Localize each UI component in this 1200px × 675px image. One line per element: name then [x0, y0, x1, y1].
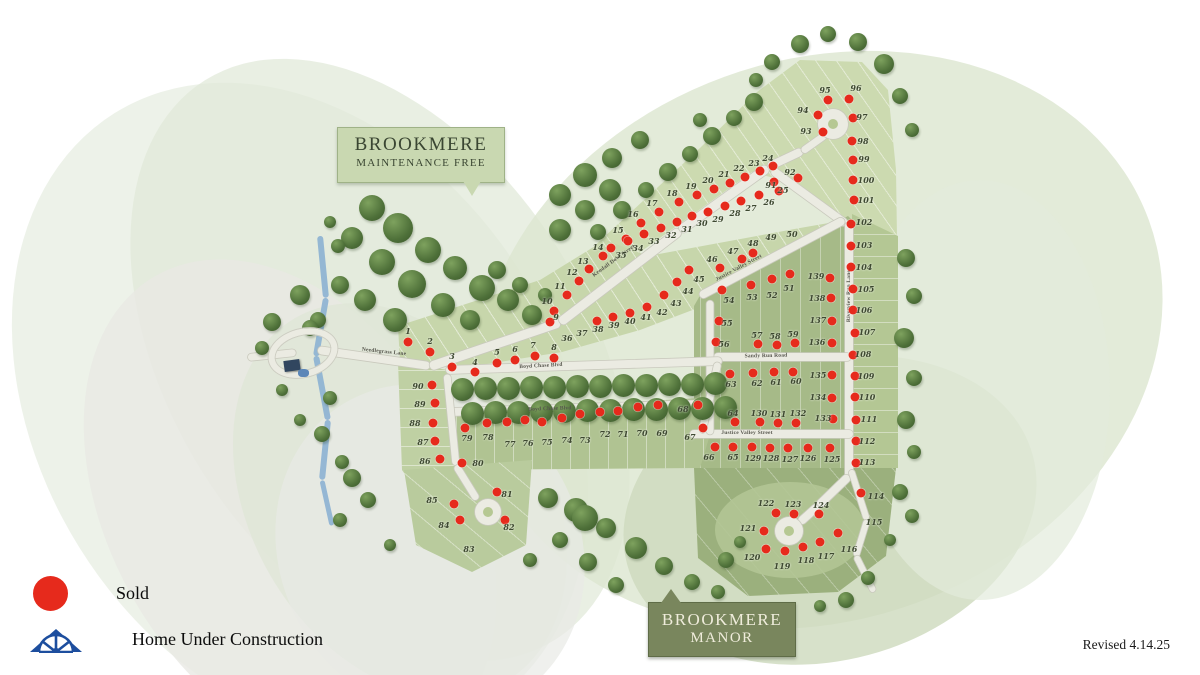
lot-8-label: 8	[551, 342, 557, 352]
lot-94-label: 94	[797, 105, 808, 115]
sold-dot-lot-90	[428, 381, 437, 390]
tree-icon	[897, 411, 915, 429]
lot-134-label: 134	[810, 392, 827, 402]
lot-117-label: 117	[818, 551, 835, 561]
sold-dot-lot-81	[493, 488, 502, 497]
lot-53-label: 53	[746, 292, 757, 302]
sold-dot-lot-7	[531, 352, 540, 361]
under-construction-label: Home Under Construction	[132, 629, 323, 650]
sold-dot-lot-125	[826, 444, 835, 453]
site-plan: 1234567891011121314151617181920212223242…	[0, 0, 1200, 675]
tree-icon	[659, 163, 677, 181]
lot-123-label: 123	[785, 499, 802, 509]
sold-dot-lot-44	[673, 278, 682, 287]
sold-dot-lot-119	[781, 547, 790, 556]
sold-dot-lot-79	[461, 424, 470, 433]
lot-75-label: 75	[541, 437, 552, 447]
sold-dot-lot-124	[815, 510, 824, 519]
lot-136-label: 136	[809, 337, 826, 347]
lot-115-label: 115	[866, 517, 883, 527]
lot-5-label: 5	[494, 347, 500, 357]
legend-row-construction: Home Under Construction	[30, 616, 323, 662]
lot-124-label: 124	[813, 500, 830, 510]
tree-icon	[323, 391, 337, 405]
tree-icon	[635, 374, 658, 397]
lot-43-label: 43	[670, 298, 681, 308]
sold-dot-lot-47	[738, 255, 747, 264]
lot-138-label: 138	[809, 293, 826, 303]
lot-126-label: 126	[800, 453, 817, 463]
lot-110-label: 110	[859, 392, 876, 402]
lot-105-label: 105	[858, 284, 875, 294]
tree-icon	[638, 182, 654, 198]
lot-50-label: 50	[786, 229, 797, 239]
sold-dot-lot-68	[694, 401, 703, 410]
tree-icon	[314, 426, 330, 442]
tree-icon	[263, 313, 281, 331]
tree-icon	[764, 54, 780, 70]
tree-icon	[566, 375, 589, 398]
sold-dot-lot-35	[607, 244, 616, 253]
lot-73-label: 73	[579, 435, 590, 445]
sold-dot-lot-63	[726, 370, 735, 379]
lot-38-label: 38	[592, 324, 603, 334]
lot-78-label: 78	[482, 432, 493, 442]
tree-icon	[602, 148, 622, 168]
sold-dot-lot-80	[458, 459, 467, 468]
tree-icon	[522, 305, 542, 325]
tree-icon	[461, 402, 484, 425]
sold-dot-lot-77	[503, 418, 512, 427]
lot-129-label: 129	[745, 453, 762, 463]
tree-icon	[497, 377, 520, 400]
lot-44-label: 44	[682, 286, 693, 296]
lot-12-label: 12	[566, 267, 577, 277]
lot-11-label: 11	[554, 281, 565, 291]
cul-de-sac-island	[784, 526, 794, 536]
lot-67-label: 67	[684, 432, 695, 442]
tree-icon	[460, 310, 480, 330]
lot-23-label: 23	[748, 158, 759, 168]
tree-icon	[384, 539, 396, 551]
lot-101-label: 101	[858, 195, 875, 205]
lot-82-label: 82	[503, 522, 514, 532]
lot-41-label: 41	[640, 312, 651, 322]
lot-59-label: 59	[787, 329, 798, 339]
tree-icon	[443, 256, 467, 280]
lot-135-label: 135	[810, 370, 827, 380]
lot-74-label: 74	[561, 435, 572, 445]
tree-icon	[608, 577, 624, 593]
sold-dot-lot-117	[816, 538, 825, 547]
tree-icon	[575, 200, 595, 220]
lot-3-label: 3	[449, 351, 455, 361]
sold-dot-lot-22	[741, 173, 750, 182]
lot-22-label: 22	[733, 163, 744, 173]
sold-dot-lot-103	[847, 242, 856, 251]
brookmere-manor-title: BROOKMERE	[649, 610, 795, 630]
tree-icon	[892, 88, 908, 104]
tree-icon	[820, 26, 836, 42]
sold-dot-lot-87	[431, 437, 440, 446]
lot-4-label: 4	[472, 357, 478, 367]
lot-27-label: 27	[745, 203, 756, 213]
brookmere-sign-title: BROOKMERE	[338, 134, 504, 156]
sold-dot-lot-127	[784, 444, 793, 453]
tree-icon	[681, 373, 704, 396]
tree-icon	[625, 537, 647, 559]
sold-dot-lot-32	[657, 224, 666, 233]
sold-dot-lot-129	[748, 443, 757, 452]
tree-icon	[703, 127, 721, 145]
sold-dot-lot-3	[448, 363, 457, 372]
sold-dot-lot-123	[790, 510, 799, 519]
lot-28-label: 28	[729, 208, 740, 218]
sold-dot-lot-67	[699, 424, 708, 433]
tree-icon	[906, 370, 922, 386]
tree-icon	[596, 518, 616, 538]
tree-icon	[905, 123, 919, 137]
sold-dot-lot-85	[450, 500, 459, 509]
tree-icon	[549, 219, 571, 241]
sold-dot-lot-121	[760, 527, 769, 536]
sold-dot-lot-102	[847, 220, 856, 229]
sold-dot-lot-2	[426, 348, 435, 357]
street-label: Sandy Run Road	[745, 353, 788, 360]
tree-icon	[451, 378, 474, 401]
sold-dot-lot-58	[773, 341, 782, 350]
tree-icon	[631, 131, 649, 149]
tree-icon	[294, 414, 306, 426]
sold-dot-lot-48	[749, 249, 758, 258]
tree-icon	[894, 328, 914, 348]
lot-79-label: 79	[461, 433, 472, 443]
sold-dot-lot-62	[749, 369, 758, 378]
sold-dot-lot-70	[634, 403, 643, 412]
lot-57-label: 57	[751, 330, 762, 340]
tree-icon	[655, 557, 673, 575]
sold-dot-lot-69	[654, 401, 663, 410]
lot-24-label: 24	[762, 153, 773, 163]
sold-dot-lot-57	[754, 340, 763, 349]
legend: Sold Home Under Construction	[30, 570, 323, 662]
lot-56-label: 56	[718, 339, 729, 349]
sold-dot-lot-1	[404, 338, 413, 347]
lot-48-label: 48	[747, 238, 758, 248]
sold-dot-lot-4	[471, 368, 480, 377]
lot-47-label: 47	[727, 246, 738, 256]
lot-45-label: 45	[693, 274, 704, 284]
lot-54-label: 54	[723, 295, 734, 305]
lot-83-label: 83	[463, 544, 474, 554]
lot-21-label: 21	[718, 169, 729, 179]
tree-icon	[415, 237, 441, 263]
sold-dot-lot-11	[563, 291, 572, 300]
tree-icon	[335, 455, 349, 469]
lot-112-label: 112	[859, 436, 876, 446]
tree-icon	[276, 384, 288, 396]
tree-icon	[838, 592, 854, 608]
sold-dot-lot-89	[431, 399, 440, 408]
lot-97-label: 97	[856, 112, 867, 122]
lot-66-label: 66	[703, 452, 714, 462]
sold-dot-lot-137	[828, 317, 837, 326]
cul-de-sac-island	[483, 507, 493, 517]
sold-dot-lot-96	[845, 95, 854, 104]
sold-dot-lot-6	[511, 356, 520, 365]
tree-icon	[906, 288, 922, 304]
lot-52-label: 52	[766, 290, 777, 300]
tree-icon	[711, 585, 725, 599]
lot-37-label: 37	[576, 328, 587, 338]
lot-139-label: 139	[808, 271, 825, 281]
tree-icon	[849, 33, 867, 51]
lot-55-label: 55	[721, 318, 732, 328]
sold-dot-lot-120	[762, 545, 771, 554]
lot-104-label: 104	[856, 262, 873, 272]
sold-dot-lot-111	[852, 416, 861, 425]
brookmere-sign: BROOKMERE MAINTENANCE FREE	[337, 127, 505, 183]
tree-icon	[691, 397, 714, 420]
lot-14-label: 14	[592, 242, 603, 252]
tree-icon	[589, 375, 612, 398]
tree-icon	[543, 376, 566, 399]
lot-71-label: 71	[617, 429, 628, 439]
sold-dot-lot-88	[429, 419, 438, 428]
sold-dot-lot-73	[576, 410, 585, 419]
lot-122-label: 122	[758, 498, 775, 508]
lot-17-label: 17	[646, 198, 657, 208]
sold-dot-lot-94	[814, 111, 823, 120]
lot-18-label: 18	[666, 188, 677, 198]
sold-dot-lot-54	[718, 286, 727, 295]
sold-dot-lot-130	[756, 418, 765, 427]
lot-68-label: 68	[677, 404, 688, 414]
tree-icon	[290, 285, 310, 305]
sold-dot-lot-100	[849, 176, 858, 185]
sold-dot-lot-31	[673, 218, 682, 227]
tree-icon	[734, 536, 746, 548]
lot-61-label: 61	[770, 377, 781, 387]
lot-89-label: 89	[414, 399, 425, 409]
lot-116-label: 116	[841, 544, 858, 554]
tree-icon	[884, 534, 896, 546]
lot-88-label: 88	[409, 418, 420, 428]
lot-111-label: 111	[861, 414, 878, 424]
lot-92-label: 92	[784, 167, 795, 177]
tree-icon	[704, 372, 727, 395]
lot-106-label: 106	[856, 305, 873, 315]
lot-99-label: 99	[858, 154, 869, 164]
lot-25-label: 25	[777, 185, 788, 195]
tree-icon	[469, 275, 495, 301]
lot-29-label: 29	[712, 214, 723, 224]
sold-dot-lot-46	[716, 264, 725, 273]
tree-icon	[892, 484, 908, 500]
sold-dot-lot-76	[521, 416, 530, 425]
sold-dot-lot-64	[731, 418, 740, 427]
sold-dot-lot-42	[643, 303, 652, 312]
sold-dot-lot-135	[828, 371, 837, 380]
sold-dot-lot-138	[827, 294, 836, 303]
lot-65-label: 65	[727, 452, 738, 462]
sold-dot-lot-51	[786, 270, 795, 279]
lot-62-label: 62	[751, 378, 762, 388]
sold-dot-lot-33	[640, 230, 649, 239]
lot-10-label: 10	[541, 296, 552, 306]
sold-dot-lot-84	[456, 516, 465, 525]
tree-icon	[573, 163, 597, 187]
sold-dot-lot-53	[747, 281, 756, 290]
tree-icon	[324, 216, 336, 228]
lot-6-label: 6	[512, 344, 518, 354]
tree-icon	[684, 574, 700, 590]
lot-2-label: 2	[427, 336, 433, 346]
tree-icon	[523, 553, 537, 567]
lot-39-label: 39	[608, 320, 619, 330]
street-label: Justice Valley Street	[721, 430, 772, 436]
tree-icon	[497, 289, 519, 311]
lot-63-label: 63	[725, 379, 736, 389]
tree-icon	[538, 488, 558, 508]
sold-dot-lot-16	[637, 219, 646, 228]
sold-dot-lot-20	[710, 185, 719, 194]
sign-pointer	[463, 181, 481, 196]
lot-51-label: 51	[783, 283, 794, 293]
sold-dot-lot-43	[660, 291, 669, 300]
sold-dot-lot-118	[799, 543, 808, 552]
lot-72-label: 72	[599, 429, 610, 439]
tree-icon	[814, 600, 826, 612]
sold-dot-lot-30	[688, 212, 697, 221]
lot-69-label: 69	[656, 428, 667, 438]
tree-icon	[572, 505, 598, 531]
sold-dot-lot-14	[599, 252, 608, 261]
sold-dot-lot-114	[857, 489, 866, 498]
sold-dot-lot-93	[819, 128, 828, 137]
tree-icon	[331, 276, 349, 294]
tree-icon	[354, 289, 376, 311]
lot-128-label: 128	[763, 453, 780, 463]
lot-90-label: 90	[412, 381, 423, 391]
tree-icon	[907, 445, 921, 459]
tree-icon	[333, 513, 347, 527]
tree-icon	[474, 377, 497, 400]
sold-dot-lot-18	[675, 198, 684, 207]
sold-dot-lot-74	[558, 414, 567, 423]
lot-46-label: 46	[706, 254, 717, 264]
lot-84-label: 84	[438, 520, 449, 530]
lot-58-label: 58	[769, 331, 780, 341]
lot-19-label: 19	[685, 181, 696, 191]
lot-49-label: 49	[765, 232, 776, 242]
lot-103-label: 103	[856, 240, 873, 250]
lot-96-label: 96	[850, 83, 861, 93]
tree-icon	[255, 341, 269, 355]
lot-9-label: 9	[553, 312, 559, 322]
tree-icon	[693, 113, 707, 127]
sold-dot-lot-12	[575, 277, 584, 286]
lot-133-label: 133	[815, 413, 832, 423]
lot-91-label: 91	[765, 180, 776, 190]
home-under-construction-icon	[30, 626, 82, 653]
lot-20-label: 20	[702, 175, 713, 185]
sold-dot-lot-8	[550, 354, 559, 363]
lot-77-label: 77	[504, 439, 515, 449]
tree-icon	[612, 374, 635, 397]
brookmere-sign-subtitle: MAINTENANCE FREE	[338, 157, 504, 169]
sold-dot-lot-5	[493, 359, 502, 368]
sold-dot-lot-65	[729, 443, 738, 452]
sold-dot-lot-105	[849, 285, 858, 294]
lot-60-label: 60	[790, 376, 801, 386]
sold-dot-lot-52	[768, 275, 777, 284]
sold-dot-lot-26	[755, 191, 764, 200]
tree-icon	[398, 270, 426, 298]
sold-icon	[33, 576, 68, 611]
entrance-water-feature	[298, 369, 309, 377]
tree-icon	[512, 277, 528, 293]
tree-icon	[383, 213, 413, 243]
sold-dot-lot-45	[685, 266, 694, 275]
tree-icon	[749, 73, 763, 87]
sold-dot-lot-116	[834, 529, 843, 538]
lot-114-label: 114	[868, 491, 885, 501]
lot-36-label: 36	[561, 333, 572, 343]
sold-dot-lot-71	[614, 407, 623, 416]
lot-93-label: 93	[800, 126, 811, 136]
sold-dot-lot-128	[766, 444, 775, 453]
lot-40-label: 40	[624, 316, 635, 326]
tree-icon	[359, 195, 385, 221]
tree-icon	[726, 110, 742, 126]
lot-70-label: 70	[636, 428, 647, 438]
tree-icon	[874, 54, 894, 74]
sold-dot-lot-17	[655, 208, 664, 217]
lot-108-label: 108	[855, 349, 872, 359]
sold-dot-lot-61	[770, 368, 779, 377]
lot-127-label: 127	[782, 454, 799, 464]
sold-dot-lot-132	[792, 419, 801, 428]
lot-95-label: 95	[819, 85, 830, 95]
sold-dot-lot-131	[774, 419, 783, 428]
tree-icon	[682, 146, 698, 162]
sold-dot-lot-66	[711, 443, 720, 452]
tree-icon	[383, 308, 407, 332]
tree-icon	[905, 509, 919, 523]
sold-dot-lot-139	[826, 274, 835, 283]
tree-icon	[745, 93, 763, 111]
sold-dot-lot-27	[737, 197, 746, 206]
lot-86-label: 86	[419, 456, 430, 466]
lot-32-label: 32	[665, 230, 676, 240]
tree-icon	[579, 553, 597, 571]
sold-dot-lot-122	[772, 509, 781, 518]
legend-row-sold: Sold	[30, 570, 323, 616]
brookmere-manor-sign: BROOKMERE MANOR	[648, 602, 796, 657]
lot-1-label: 1	[405, 326, 411, 336]
sold-dot-lot-104	[847, 263, 856, 272]
lot-100-label: 100	[858, 175, 875, 185]
tree-icon	[520, 376, 543, 399]
tree-icon	[331, 239, 345, 253]
lot-26-label: 26	[763, 197, 774, 207]
tree-icon	[360, 492, 376, 508]
brookmere-manor-subtitle: MANOR	[649, 630, 795, 647]
sold-dot-lot-86	[436, 455, 445, 464]
lot-120-label: 120	[744, 552, 761, 562]
tree-icon	[343, 469, 361, 487]
